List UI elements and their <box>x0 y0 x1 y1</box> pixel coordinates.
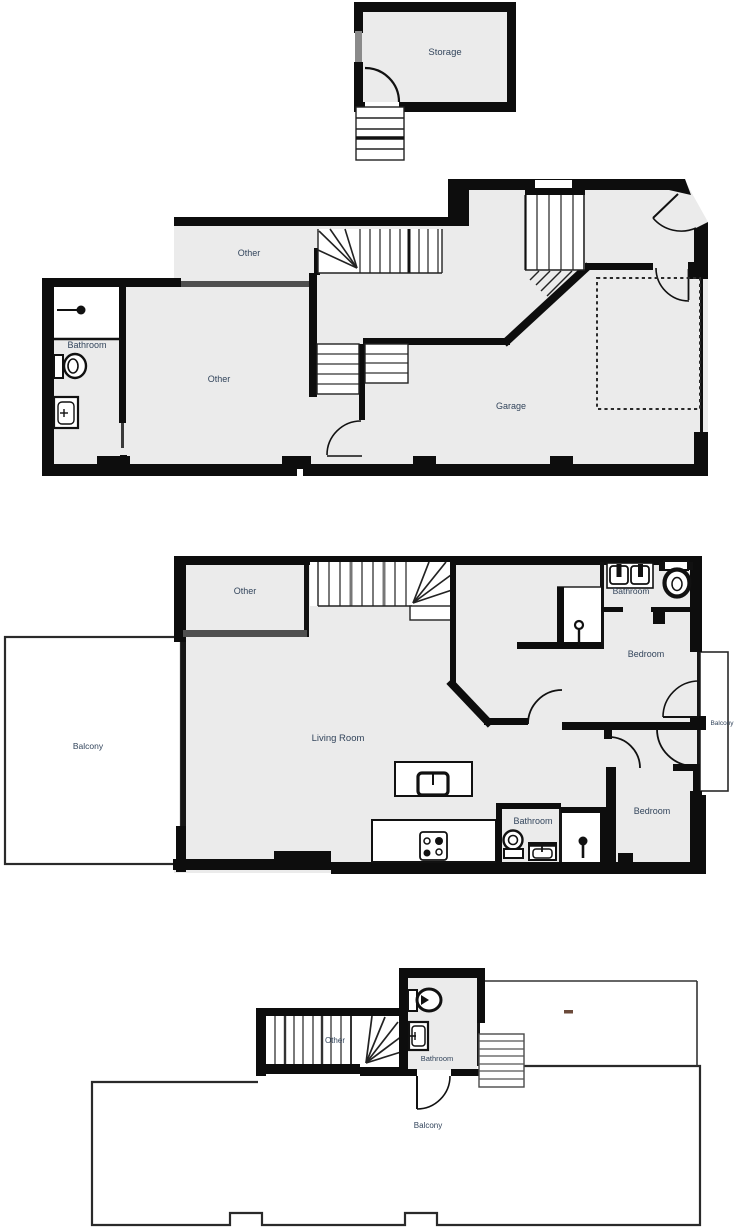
svg-text:Bathroom: Bathroom <box>613 586 650 596</box>
svg-text:Living Room: Living Room <box>312 733 365 744</box>
svg-text:Balcony: Balcony <box>414 1121 442 1130</box>
svg-text:Other: Other <box>234 586 257 596</box>
svg-text:Balcony: Balcony <box>710 720 734 727</box>
svg-text:Other: Other <box>238 248 261 258</box>
svg-text:Garage: Garage <box>496 401 526 411</box>
svg-text:Bedroom: Bedroom <box>634 806 671 816</box>
svg-text:Other: Other <box>325 1036 345 1045</box>
svg-text:Balcony: Balcony <box>73 741 104 751</box>
svg-text:Bathroom: Bathroom <box>421 1054 454 1063</box>
svg-text:Other: Other <box>208 374 231 384</box>
svg-text:Bathroom: Bathroom <box>67 340 106 350</box>
svg-text:Bathroom: Bathroom <box>513 816 552 826</box>
svg-text:Bedroom: Bedroom <box>628 649 665 659</box>
svg-text:Storage: Storage <box>428 47 461 58</box>
